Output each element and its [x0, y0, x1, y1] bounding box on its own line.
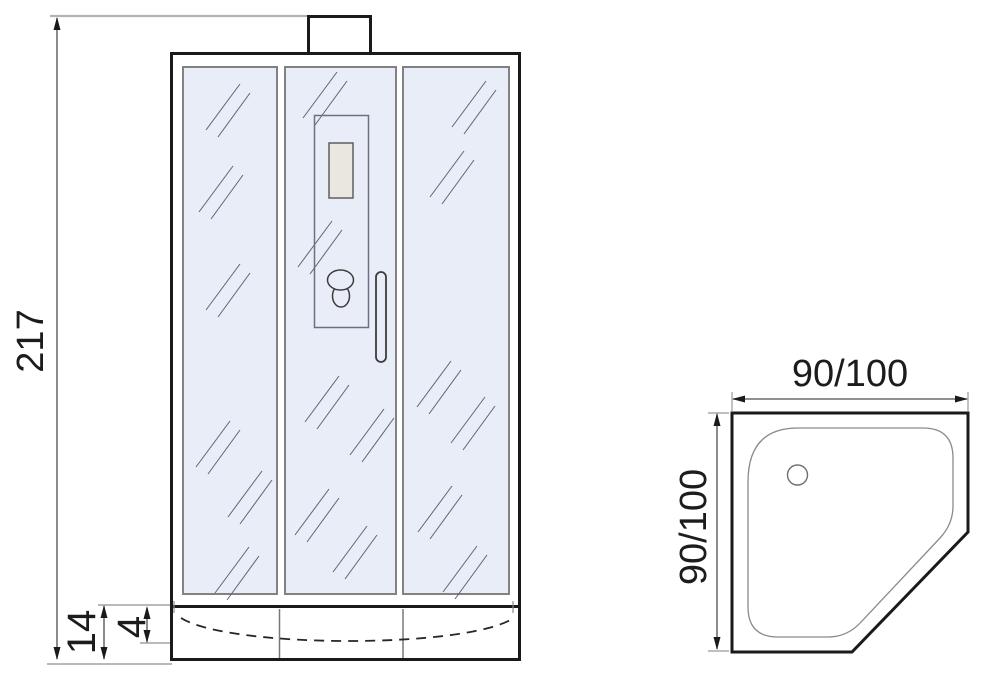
dimension-lines-front [57, 18, 147, 659]
arrow-right-icon [955, 396, 968, 403]
tray-height-label: 14 [62, 610, 102, 655]
roof-vent-box [309, 17, 371, 54]
overall-height-label: 217 [12, 309, 50, 372]
arrow-left-icon [732, 396, 745, 403]
door-handle [376, 272, 386, 362]
dimension-arrows-front [54, 17, 151, 660]
drain-hole [788, 465, 808, 485]
front-view [47, 16, 520, 664]
tray-depth-label: 90/100 [675, 469, 713, 585]
shower-knob [328, 270, 354, 290]
arrow-up-icon [54, 17, 61, 30]
tray-width-label: 90/100 [792, 355, 908, 393]
arrow-down-icon [714, 637, 721, 650]
arrow-up-icon [714, 413, 721, 426]
glass-panel-right [403, 67, 509, 594]
technical-drawing [0, 0, 995, 680]
shower-cabin-dimension-diagram: 217 14 4 90/100 90/100 [0, 0, 995, 680]
tray-outline [732, 413, 968, 652]
tray-inner-depth-label: 4 [112, 616, 152, 638]
control-inset-panel [329, 143, 353, 198]
top-view [708, 392, 968, 652]
